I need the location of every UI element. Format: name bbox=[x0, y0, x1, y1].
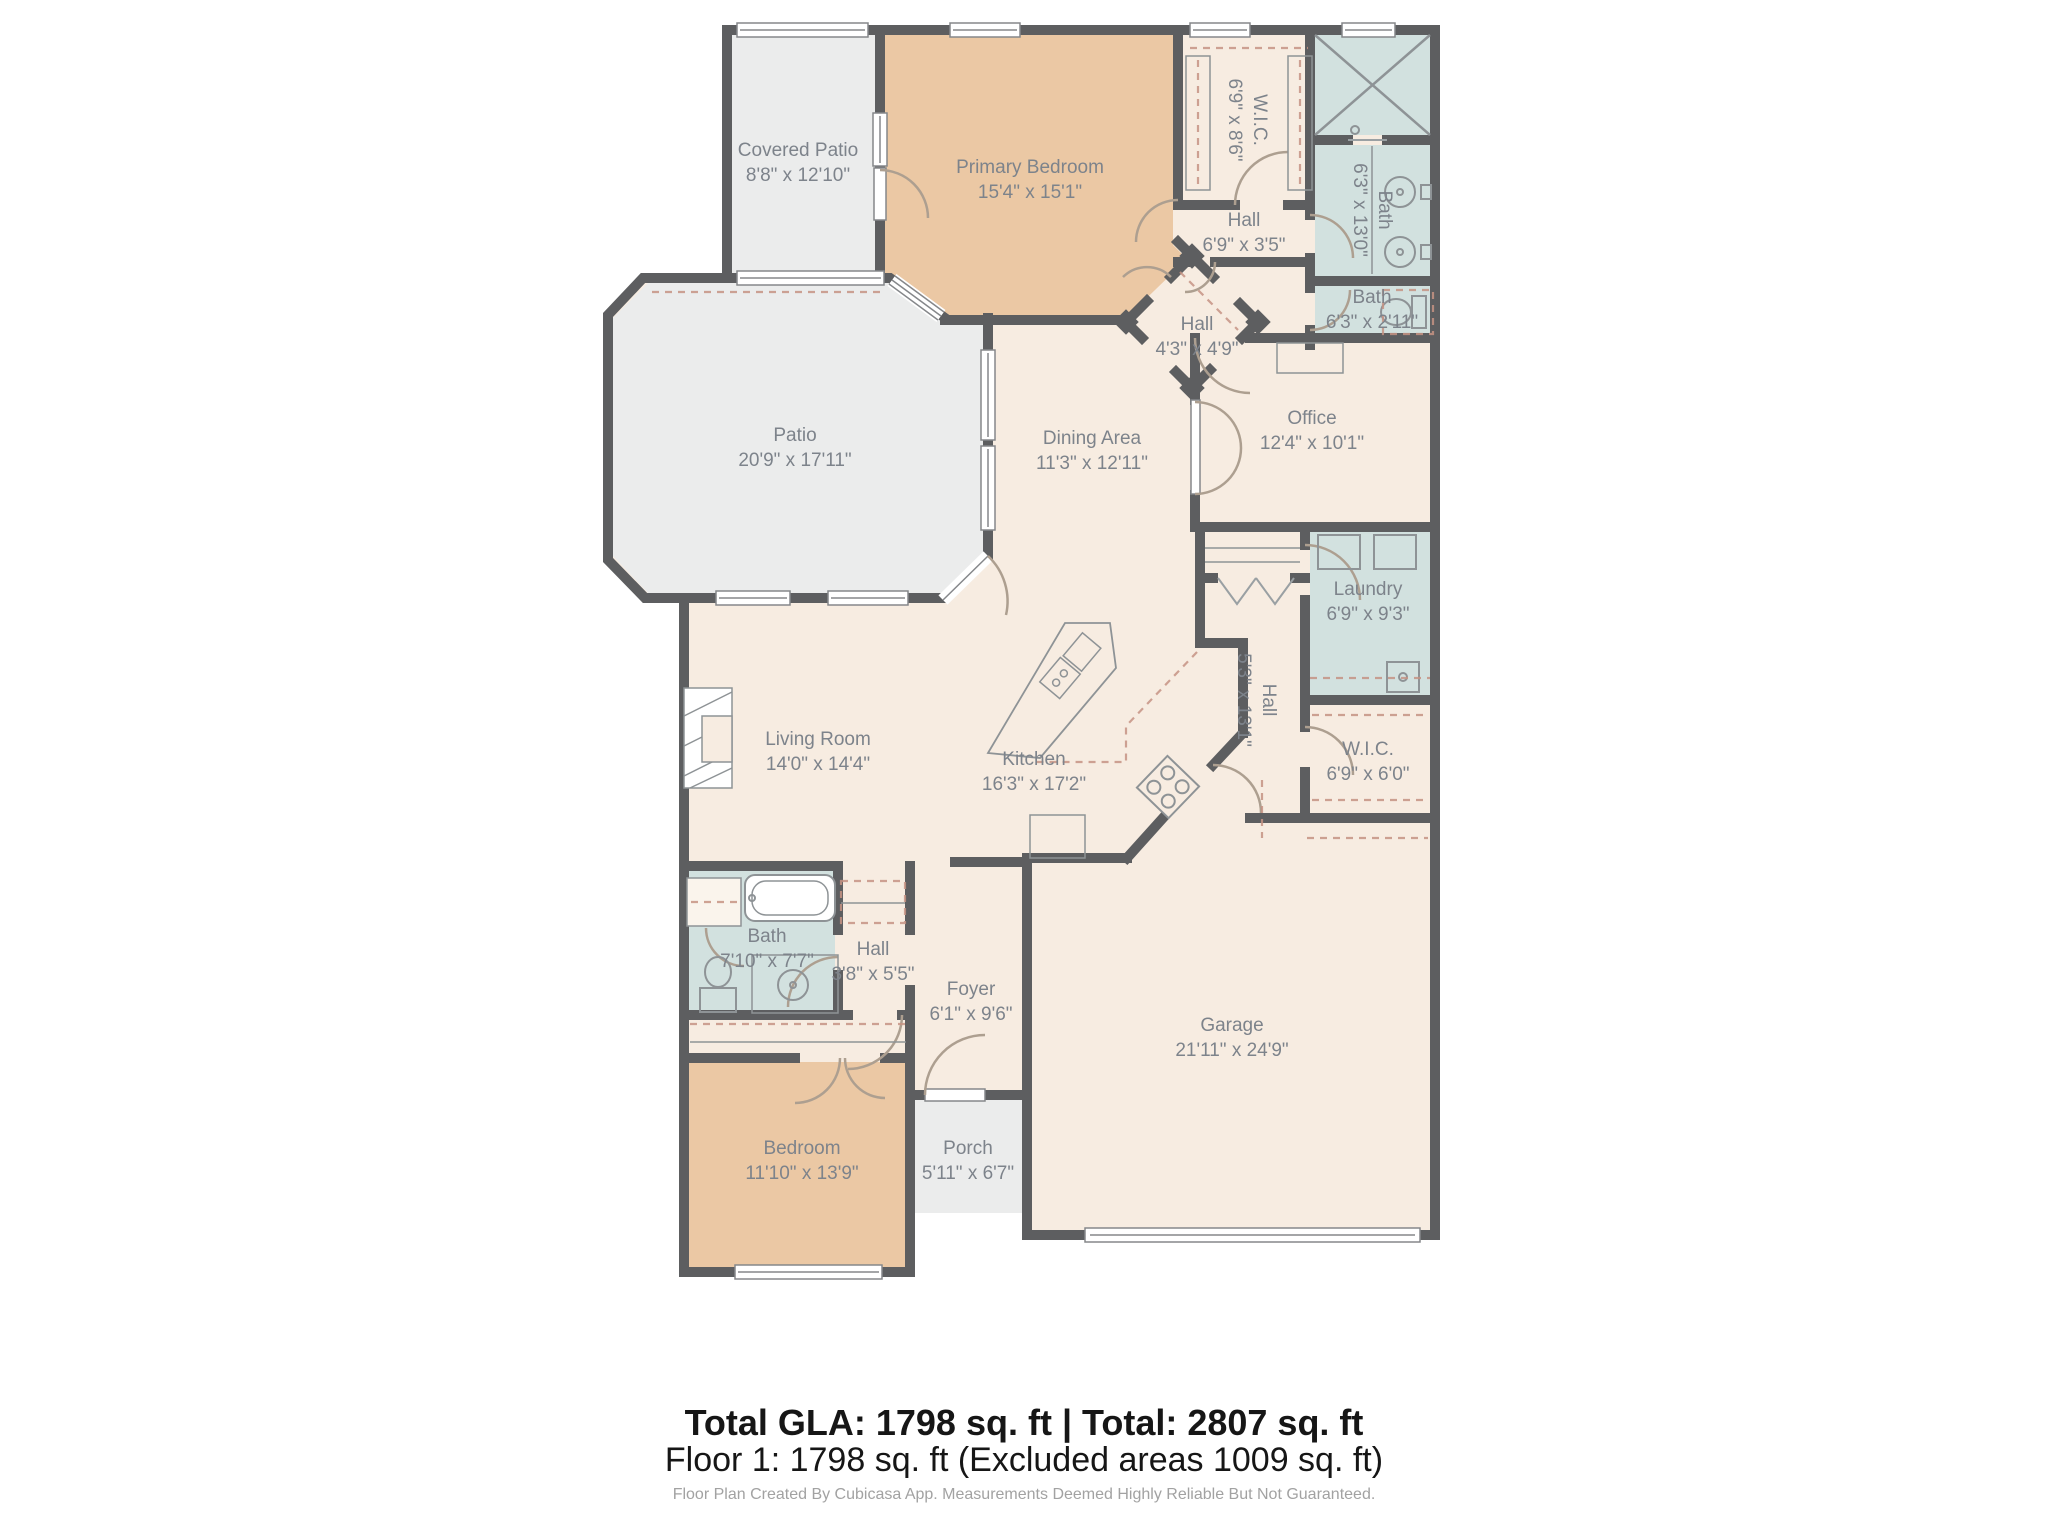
room-label-porch: Porch5'11" x 6'7" bbox=[922, 1136, 1014, 1186]
window bbox=[950, 23, 1020, 37]
room-label-hall-primary: Hall6'9" x 3'5" bbox=[1202, 208, 1285, 258]
door-leaf bbox=[874, 168, 886, 220]
room-label-primary-bedroom: Primary Bedroom15'4" x 15'1" bbox=[956, 155, 1104, 205]
room-label-patio: Patio20'9" x 17'11" bbox=[738, 423, 851, 473]
room-label-garage: Garage21'11" x 24'9" bbox=[1175, 1013, 1288, 1063]
room-label-toilet-room: Bath6'3" x 2'11" bbox=[1326, 285, 1418, 335]
fireplace-icon bbox=[684, 688, 732, 788]
room-label-hall-main: Hall5'3" x 13'1" bbox=[1231, 653, 1281, 747]
room-label-wic-primary: W.I.C.6'9" x 8'6" bbox=[1222, 78, 1272, 161]
floor-summary: Floor 1: 1798 sq. ft (Excluded areas 100… bbox=[0, 1441, 2048, 1480]
room-label-bath-primary: Bath6'3" x 13'0" bbox=[1347, 163, 1397, 257]
french-door-leaves bbox=[1191, 400, 1200, 494]
window bbox=[737, 23, 868, 37]
room-label-office: Office12'4" x 10'1" bbox=[1260, 406, 1364, 456]
room-label-bath: Bath7'10" x 7'7" bbox=[720, 924, 814, 974]
window bbox=[716, 591, 790, 605]
room-label-hall-3: Hall3'8" x 5'5" bbox=[831, 937, 914, 987]
room-label-dining-area: Dining Area11'3" x 12'11" bbox=[1036, 426, 1148, 476]
room-label-foyer: Foyer6'1" x 9'6" bbox=[929, 977, 1012, 1027]
room-label-kitchen: Kitchen16'3" x 17'2" bbox=[982, 747, 1086, 797]
disclaimer-text: Floor Plan Created By Cubicasa App. Meas… bbox=[0, 1486, 2048, 1504]
room-label-hall-diamond: Hall4'3" x 4'9" bbox=[1155, 312, 1238, 362]
floor-plan-page: Covered Patio8'8" x 12'10" Primary Bedro… bbox=[0, 0, 2048, 1536]
window bbox=[1342, 23, 1395, 37]
window bbox=[735, 1265, 882, 1279]
window bbox=[737, 271, 884, 285]
window bbox=[873, 113, 887, 166]
totals-summary: Total GLA: 1798 sq. ft | Total: 2807 sq.… bbox=[0, 1402, 2048, 1444]
room-label-bedroom: Bedroom11'10" x 13'9" bbox=[745, 1136, 858, 1186]
room-label-living-room: Living Room14'0" x 14'4" bbox=[765, 727, 871, 777]
window bbox=[981, 350, 995, 440]
window bbox=[828, 591, 908, 605]
garage-door bbox=[1085, 1228, 1420, 1242]
bathtub-icon bbox=[745, 875, 835, 921]
room-label-laundry: Laundry6'9" x 9'3" bbox=[1326, 577, 1409, 627]
room-label-covered-patio: Covered Patio8'8" x 12'10" bbox=[738, 138, 858, 188]
window bbox=[981, 446, 995, 530]
window bbox=[1190, 23, 1250, 37]
room-label-wic-2: W.I.C.6'9" x 6'0" bbox=[1326, 737, 1409, 787]
front-door-leaf bbox=[925, 1089, 985, 1101]
